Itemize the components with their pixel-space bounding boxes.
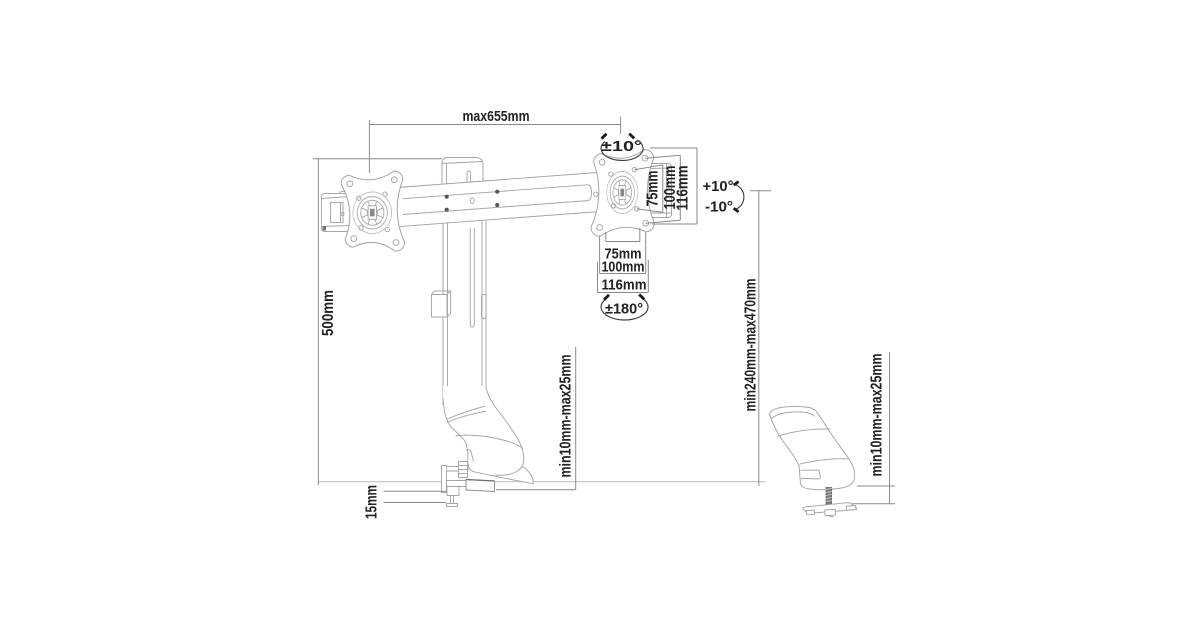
svg-text:-10°: -10° — [705, 200, 733, 216]
svg-text:±10°: ±10° — [601, 139, 642, 155]
svg-text:75mm: 75mm — [645, 171, 662, 207]
svg-text:min10mm-max25mm: min10mm-max25mm — [558, 355, 575, 478]
svg-text:116mm: 116mm — [602, 278, 647, 294]
svg-text:±180°: ±180° — [605, 302, 643, 318]
svg-text:116mm: 116mm — [675, 166, 692, 211]
svg-text:max655mm: max655mm — [463, 109, 530, 125]
svg-text:500mm: 500mm — [320, 290, 337, 336]
svg-text:+10°: +10° — [703, 179, 734, 195]
svg-text:min240mm-max470mm: min240mm-max470mm — [743, 279, 760, 412]
svg-text:100mm: 100mm — [602, 260, 645, 276]
svg-text:min10mm-max25mm: min10mm-max25mm — [869, 354, 886, 477]
svg-text:15mm: 15mm — [364, 485, 381, 519]
